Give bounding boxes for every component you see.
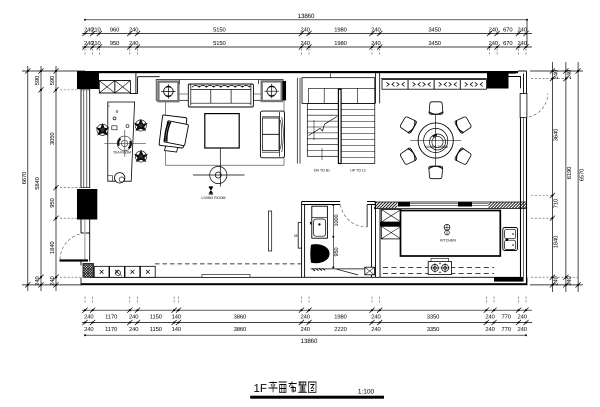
svg-text:13860: 13860	[298, 13, 315, 20]
svg-text:240: 240	[129, 27, 138, 34]
svg-text:240: 240	[301, 326, 310, 333]
svg-text:240: 240	[489, 40, 498, 47]
svg-text:240: 240	[371, 27, 380, 34]
svg-text:3050: 3050	[49, 133, 56, 146]
svg-text:670: 670	[503, 40, 512, 47]
svg-text:1150: 1150	[150, 326, 162, 333]
svg-text:960: 960	[110, 27, 119, 34]
svg-text:3450: 3450	[428, 40, 441, 47]
svg-text:1170: 1170	[105, 326, 117, 333]
svg-text:950: 950	[49, 198, 56, 207]
svg-text:240: 240	[129, 326, 138, 333]
svg-text:DINING ROOM: DINING ROOM	[425, 145, 448, 149]
svg-text:6670: 6670	[21, 172, 28, 185]
svg-text:240: 240	[518, 27, 527, 34]
svg-text:KITCHEN: KITCHEN	[440, 239, 456, 243]
svg-text:1980: 1980	[334, 314, 347, 321]
svg-text:240: 240	[129, 40, 138, 47]
svg-text:240: 240	[84, 326, 93, 333]
svg-text:210: 210	[91, 40, 100, 47]
svg-text:590: 590	[34, 76, 41, 85]
svg-text:770: 770	[502, 326, 511, 333]
svg-text:240: 240	[34, 276, 41, 285]
svg-text:6570: 6570	[578, 169, 585, 182]
svg-text:DN TO B1: DN TO B1	[314, 169, 330, 173]
svg-text:240: 240	[566, 70, 573, 79]
svg-text:6190: 6190	[566, 167, 573, 180]
svg-text:240: 240	[84, 314, 93, 321]
svg-text:950: 950	[110, 40, 119, 47]
svg-text:240: 240	[371, 40, 380, 47]
svg-text:770: 770	[502, 314, 511, 321]
svg-text:3860: 3860	[234, 326, 247, 333]
svg-text:240: 240	[301, 27, 310, 34]
svg-text:3350: 3350	[427, 314, 440, 321]
svg-text:3350: 3350	[427, 326, 440, 333]
svg-text:5150: 5150	[213, 27, 226, 34]
svg-text:5150: 5150	[213, 40, 226, 47]
svg-text:1170: 1170	[105, 314, 117, 321]
svg-text:240: 240	[371, 326, 380, 333]
svg-text:240: 240	[553, 70, 560, 79]
svg-text:240: 240	[301, 40, 310, 47]
svg-text:1000: 1000	[334, 214, 340, 226]
svg-text:1980: 1980	[334, 27, 347, 34]
svg-text:LIVING ROOM: LIVING ROOM	[202, 196, 226, 200]
svg-text:240: 240	[485, 326, 494, 333]
svg-text:590: 590	[49, 76, 56, 85]
svg-text:1980: 1980	[334, 40, 347, 47]
svg-text:3450: 3450	[428, 27, 441, 34]
svg-text:TEA ROOM: TEA ROOM	[113, 151, 131, 155]
svg-text:M: M	[294, 234, 297, 238]
svg-text:240: 240	[485, 314, 494, 321]
svg-text:240: 240	[301, 314, 310, 321]
svg-text:UP TO 12: UP TO 12	[350, 169, 365, 173]
svg-text:240: 240	[518, 326, 527, 333]
svg-text:240: 240	[553, 276, 560, 285]
svg-text:3640: 3640	[553, 129, 560, 142]
svg-text:240: 240	[129, 314, 138, 321]
svg-text:240: 240	[489, 27, 498, 34]
svg-text:240: 240	[518, 314, 527, 321]
svg-text:140: 140	[172, 326, 181, 333]
svg-text:710: 710	[553, 199, 560, 208]
svg-text:2220: 2220	[334, 326, 347, 333]
svg-text:240: 240	[49, 276, 56, 285]
svg-text:240: 240	[371, 314, 380, 321]
svg-text:1F: 1F	[254, 383, 267, 395]
svg-text:13860: 13860	[301, 338, 318, 345]
svg-text:670: 670	[503, 27, 512, 34]
svg-text:1840: 1840	[553, 236, 560, 249]
svg-text:950: 950	[334, 247, 340, 256]
svg-text:1840: 1840	[49, 241, 56, 254]
svg-text:240: 240	[566, 276, 573, 285]
svg-text:1150: 1150	[150, 314, 162, 321]
svg-text:5840: 5840	[34, 177, 41, 190]
svg-text:3860: 3860	[234, 314, 247, 321]
svg-text:1:100: 1:100	[358, 389, 375, 396]
svg-text:210: 210	[91, 27, 100, 34]
svg-text:240: 240	[518, 40, 527, 47]
svg-text:140: 140	[172, 314, 181, 321]
